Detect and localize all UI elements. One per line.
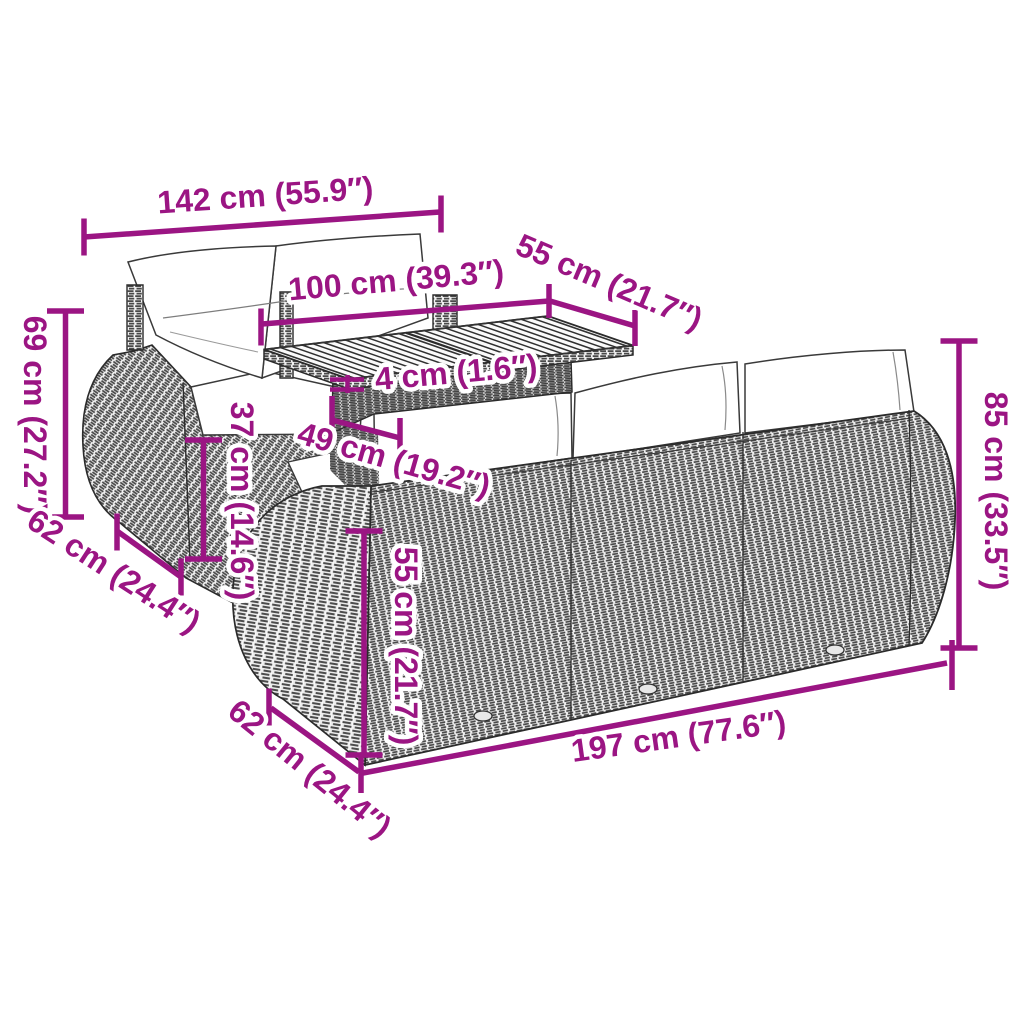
svg-text:85 cm (33.5″): 85 cm (33.5″)	[978, 392, 1014, 591]
svg-text:55 cm (21.7″): 55 cm (21.7″)	[388, 547, 424, 746]
svg-text:37 cm (14.6″): 37 cm (14.6″)	[224, 402, 260, 601]
svg-text:69 cm (27.2″): 69 cm (27.2″)	[17, 316, 53, 515]
